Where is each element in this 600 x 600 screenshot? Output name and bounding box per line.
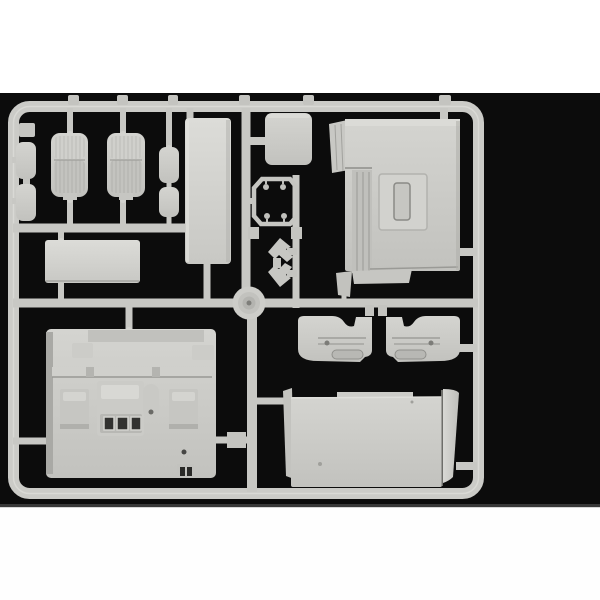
top-white-band xyxy=(0,0,600,93)
pad-mid-upper xyxy=(159,147,179,183)
pad-left-lower xyxy=(16,184,36,221)
square-panel xyxy=(265,113,312,165)
door-panel-left xyxy=(298,316,372,362)
seat-right xyxy=(107,133,145,200)
backdrop-edge xyxy=(0,504,600,508)
flat-plate xyxy=(45,240,140,283)
seat-left xyxy=(51,133,88,200)
clip-nub xyxy=(19,123,35,137)
injection-hub xyxy=(233,287,266,320)
door-panel-right xyxy=(386,316,460,362)
sprue-photo-canvas xyxy=(0,0,600,600)
cab-floor xyxy=(46,329,216,478)
pad-mid-lower xyxy=(159,187,179,217)
tall-panel xyxy=(185,118,231,264)
bottom-white-band xyxy=(0,507,600,600)
sprue-photo xyxy=(0,0,600,600)
pad-left-upper xyxy=(16,142,36,179)
front-cab-panel xyxy=(283,388,459,487)
rear-wall-panel xyxy=(329,119,460,297)
